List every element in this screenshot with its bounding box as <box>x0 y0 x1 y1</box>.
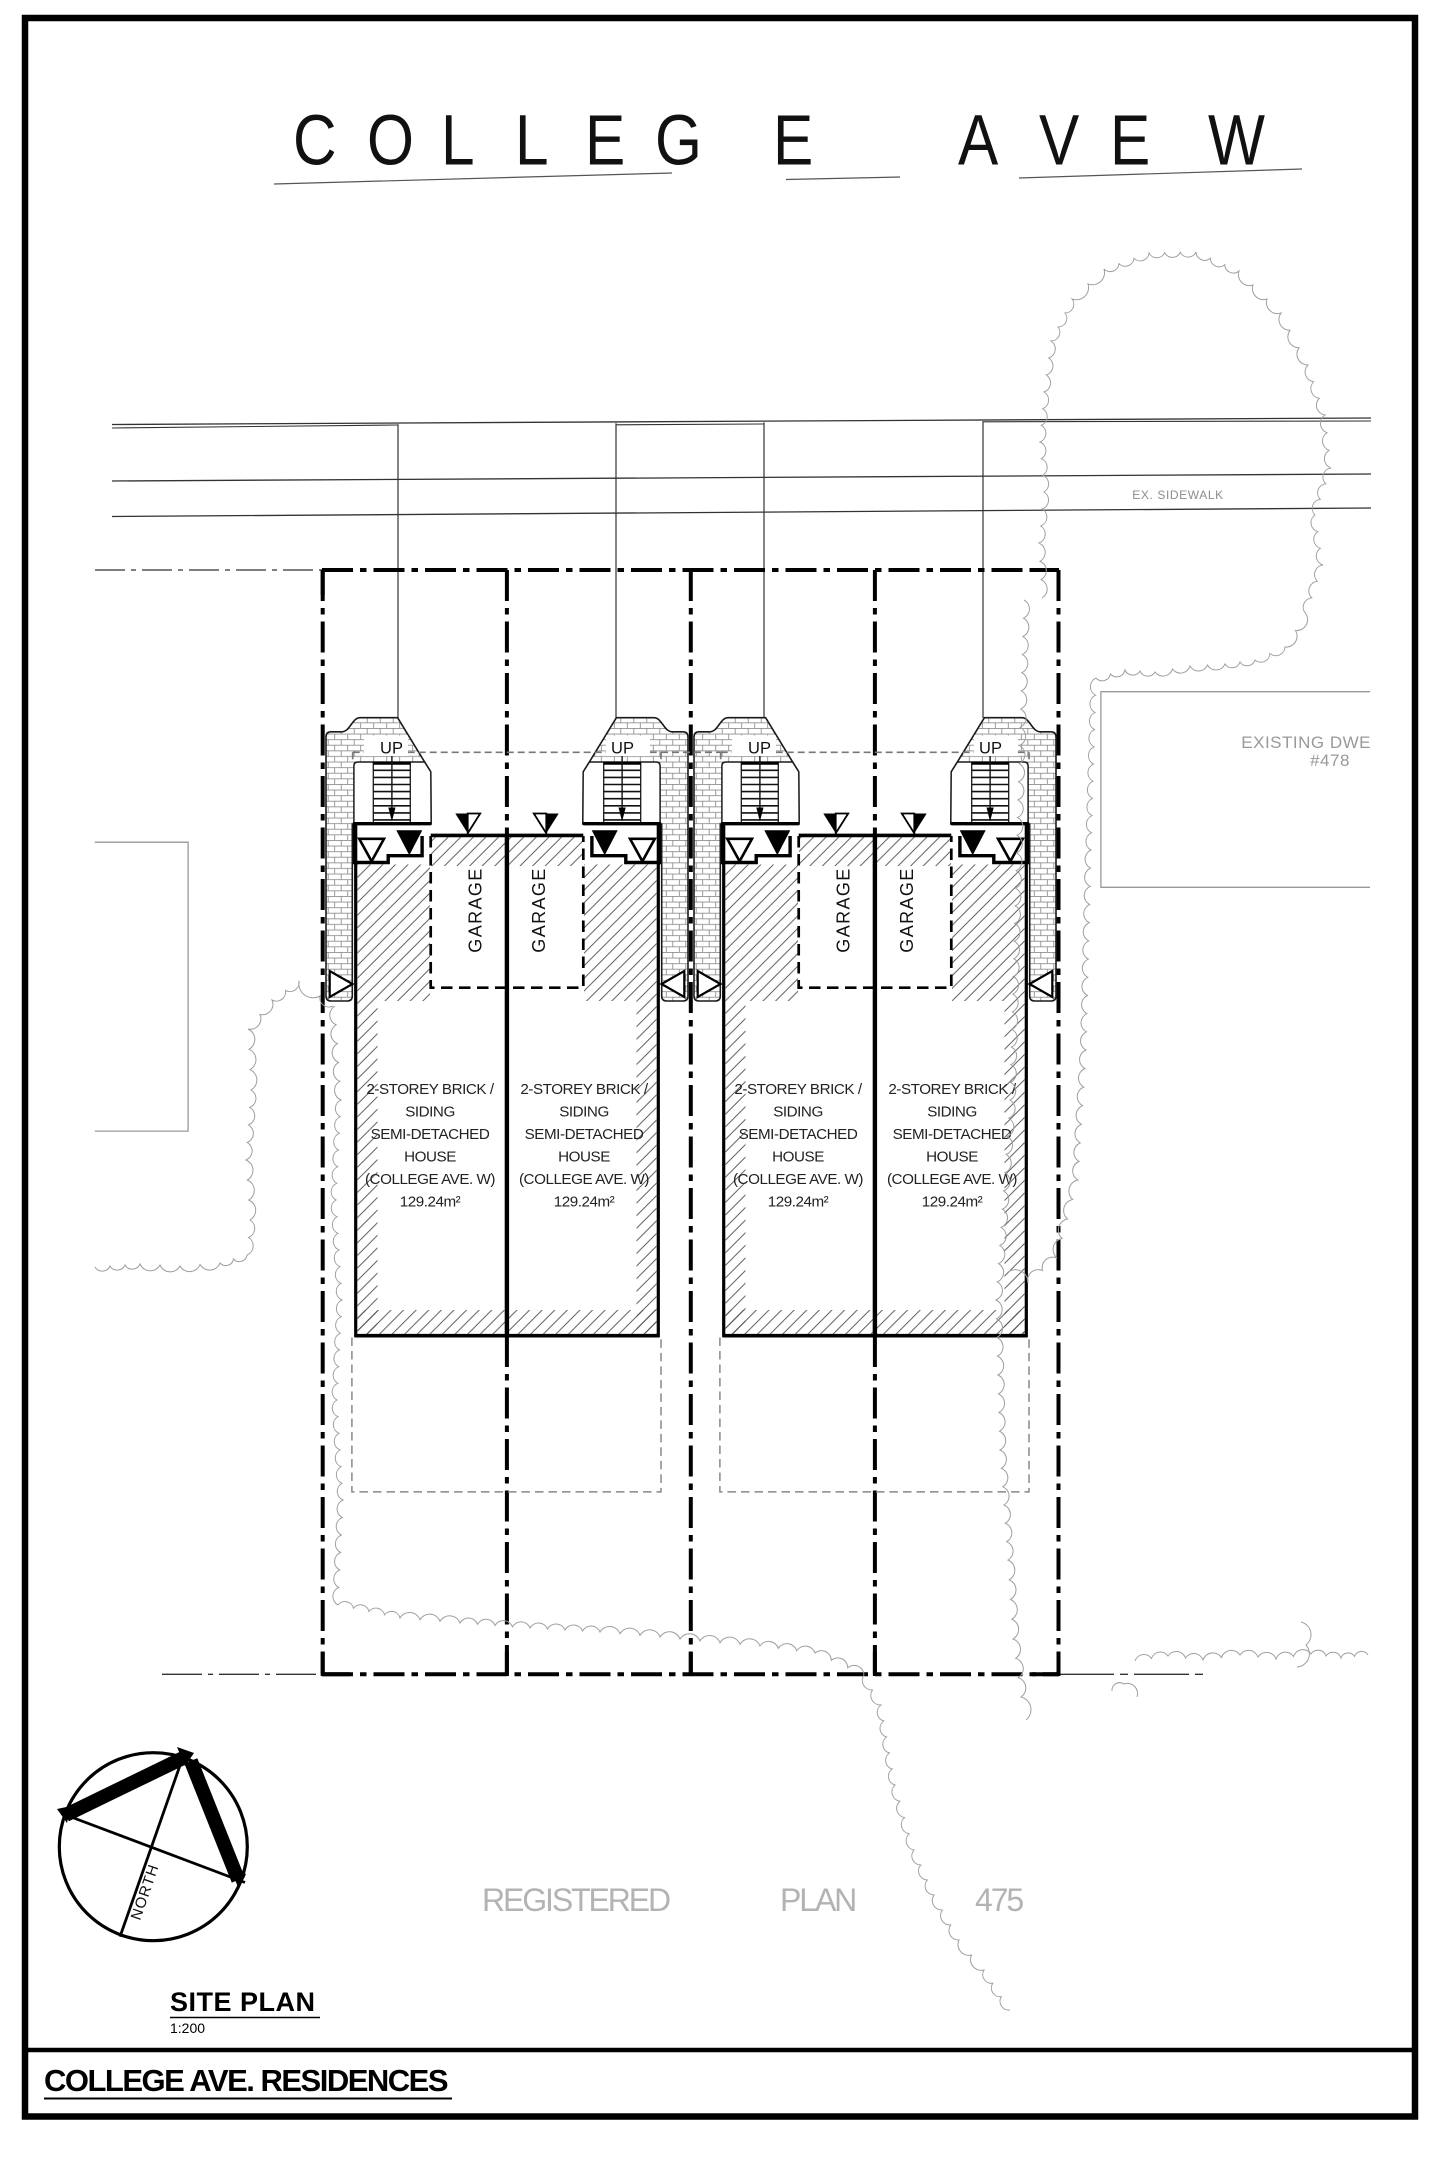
svg-text:UP: UP <box>748 740 771 758</box>
svg-text:2-STOREY BRICK /: 2-STOREY BRICK / <box>888 1081 1017 1098</box>
svg-text:G: G <box>655 100 702 180</box>
svg-text:475: 475 <box>975 1882 1023 1918</box>
svg-text:SITE PLAN: SITE PLAN <box>170 1987 316 2017</box>
svg-text:COLLEGE AVE. RESIDENCES: COLLEGE AVE. RESIDENCES <box>44 2063 448 2098</box>
svg-text:GARAGE: GARAGE <box>466 867 486 952</box>
svg-text:GARAGE: GARAGE <box>897 867 917 952</box>
svg-text:UP: UP <box>979 740 1002 758</box>
svg-text:2-STOREY BRICK /: 2-STOREY BRICK / <box>366 1081 495 1098</box>
svg-text:2-STOREY BRICK /: 2-STOREY BRICK / <box>520 1081 649 1098</box>
svg-text:SEMI-DETACHED: SEMI-DETACHED <box>525 1126 644 1143</box>
svg-text:W: W <box>1208 100 1265 180</box>
svg-text:REGISTERED: REGISTERED <box>482 1882 670 1918</box>
svg-text:(COLLEGE AVE. W): (COLLEGE AVE. W) <box>733 1171 863 1188</box>
svg-text:(COLLEGE AVE. W): (COLLEGE AVE. W) <box>365 1171 495 1188</box>
svg-text:EX. SIDEWALK: EX. SIDEWALK <box>1132 488 1223 502</box>
svg-text:GARAGE: GARAGE <box>529 867 549 952</box>
svg-text:#478: #478 <box>1310 751 1350 770</box>
svg-text:E: E <box>585 100 625 180</box>
svg-text:129.24m²: 129.24m² <box>400 1194 461 1211</box>
svg-text:SIDING: SIDING <box>773 1104 823 1121</box>
svg-text:NORTH: NORTH <box>128 1862 163 1922</box>
svg-text:O: O <box>367 100 414 180</box>
svg-text:L: L <box>441 100 475 180</box>
svg-text:V: V <box>1039 100 1079 180</box>
svg-text:E: E <box>773 100 813 180</box>
svg-text:L: L <box>515 100 549 180</box>
svg-text:E: E <box>1110 100 1150 180</box>
svg-text:PLAN: PLAN <box>780 1882 855 1918</box>
svg-text:129.24m²: 129.24m² <box>922 1194 983 1211</box>
svg-text:HOUSE: HOUSE <box>772 1149 824 1166</box>
svg-text:SIDING: SIDING <box>405 1104 455 1121</box>
svg-text:(COLLEGE AVE. W): (COLLEGE AVE. W) <box>887 1171 1017 1188</box>
svg-text:UP: UP <box>611 740 634 758</box>
svg-text:(COLLEGE AVE. W): (COLLEGE AVE. W) <box>519 1171 649 1188</box>
svg-text:1:200: 1:200 <box>170 2020 205 2036</box>
svg-text:SEMI-DETACHED: SEMI-DETACHED <box>893 1126 1012 1143</box>
svg-text:SEMI-DETACHED: SEMI-DETACHED <box>371 1126 490 1143</box>
svg-text:HOUSE: HOUSE <box>404 1149 456 1166</box>
svg-text:C: C <box>293 100 337 180</box>
svg-text:HOUSE: HOUSE <box>926 1149 978 1166</box>
svg-text:SIDING: SIDING <box>927 1104 977 1121</box>
svg-text:EXISTING DWE: EXISTING DWE <box>1241 733 1371 752</box>
svg-text:A: A <box>958 100 998 180</box>
svg-text:2-STOREY BRICK /: 2-STOREY BRICK / <box>734 1081 863 1098</box>
svg-text:129.24m²: 129.24m² <box>768 1194 829 1211</box>
svg-text:GARAGE: GARAGE <box>834 867 854 952</box>
svg-text:SEMI-DETACHED: SEMI-DETACHED <box>739 1126 858 1143</box>
svg-text:HOUSE: HOUSE <box>558 1149 610 1166</box>
svg-text:129.24m²: 129.24m² <box>554 1194 615 1211</box>
svg-text:SIDING: SIDING <box>559 1104 609 1121</box>
svg-text:UP: UP <box>380 740 403 758</box>
